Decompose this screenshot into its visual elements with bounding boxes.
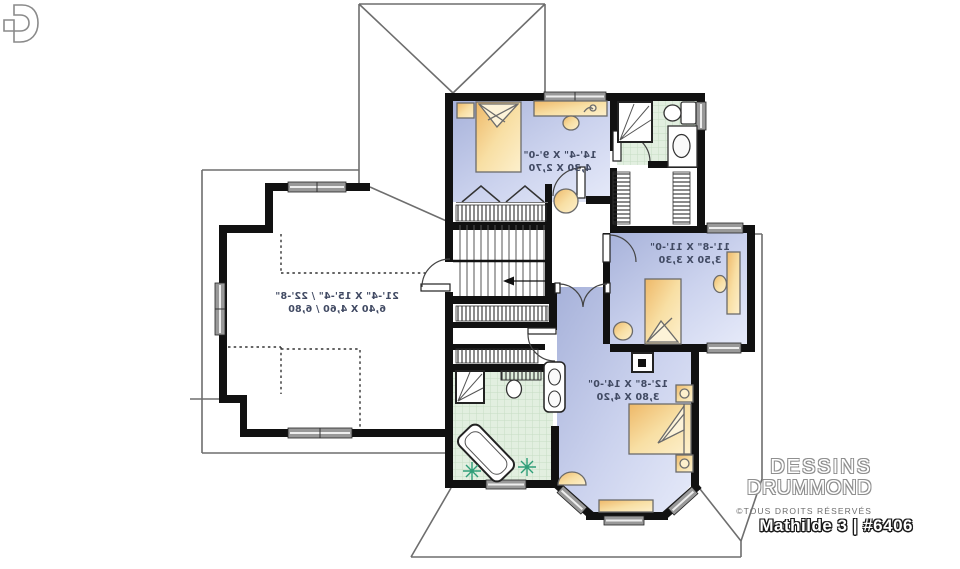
door-bonus-room — [421, 259, 450, 291]
stair-direction-arrow — [503, 277, 547, 286]
desk-bedroom2 — [727, 252, 740, 314]
bedroom-2-imperial: 11'-8" X 11'-0" — [650, 242, 730, 253]
sink-vanity-bathroom — [668, 126, 697, 167]
window-bay-bottom — [604, 516, 644, 525]
window-bedroom2-top — [707, 223, 743, 233]
window-bedroom2-bottom — [707, 343, 741, 353]
chair — [563, 116, 579, 130]
bonus-room-imperial: 21'-4" X 15'-4" / 22'-8" — [275, 291, 399, 302]
dresser — [599, 500, 653, 512]
shower-ensuite — [456, 371, 484, 403]
bedroom-1-imperial: 14'-4" X 9'-0" — [523, 150, 596, 161]
brand-name-line2: DRUMMOND — [736, 478, 872, 499]
nightstand — [676, 385, 693, 402]
bed-master — [629, 404, 691, 454]
round-table — [614, 322, 633, 340]
bed-bedroom1 — [476, 102, 521, 172]
chair — [714, 276, 727, 293]
bonus-room-label: 21'-4" X 15'-4" / 22'-8" 6,40 X 4,60 / 6… — [275, 291, 399, 315]
stairs — [453, 225, 547, 296]
bedroom-1-metric: 4,30 X 2,70 — [528, 163, 591, 174]
bedroom1-closet-rod — [456, 205, 546, 221]
brand-name-line1: DESSINS — [736, 457, 872, 478]
window-bonus-left — [215, 283, 225, 335]
drummond-logo-icon — [0, 0, 42, 48]
master-closet-rod-2 — [456, 349, 538, 363]
master-bedroom-metric: 3,80 X 4,20 — [596, 392, 659, 403]
window-bonus-top — [288, 182, 346, 192]
nightstand — [457, 103, 474, 118]
chase-box — [632, 353, 653, 372]
plan-title: Mathilde 3 | #6406 — [759, 516, 913, 536]
bedroom-2-metric: 3,50 X 3,30 — [658, 255, 721, 266]
double-sink-vanity — [544, 362, 565, 412]
bonus-room-metric: 6,40 X 4,60 / 6,80 — [288, 304, 386, 315]
shower-bathroom — [618, 102, 652, 142]
master-bedroom-imperial: 12'-8" X 14'-0" — [588, 379, 668, 390]
floor-plan-screenshot: 14'-4" X 9'-0" 4,30 X 2,70 11'-8" X 11'-… — [0, 0, 960, 569]
bed-bedroom2 — [645, 279, 681, 344]
hall-round-table — [554, 189, 578, 213]
attic-boundary-dashed-lines — [228, 234, 428, 428]
walkin-rod-right — [673, 172, 690, 224]
walkin-rod-left — [613, 172, 630, 224]
window-bonus-bottom — [288, 428, 352, 438]
brand-block: DESSINS DRUMMOND ©TOUS DROITS RÉSERVÉS — [736, 457, 872, 522]
window-bedroom1-top — [544, 92, 606, 101]
nightstand — [676, 455, 693, 472]
window-ensuite-bottom — [486, 480, 526, 489]
master-closet-rod-1 — [456, 306, 548, 321]
